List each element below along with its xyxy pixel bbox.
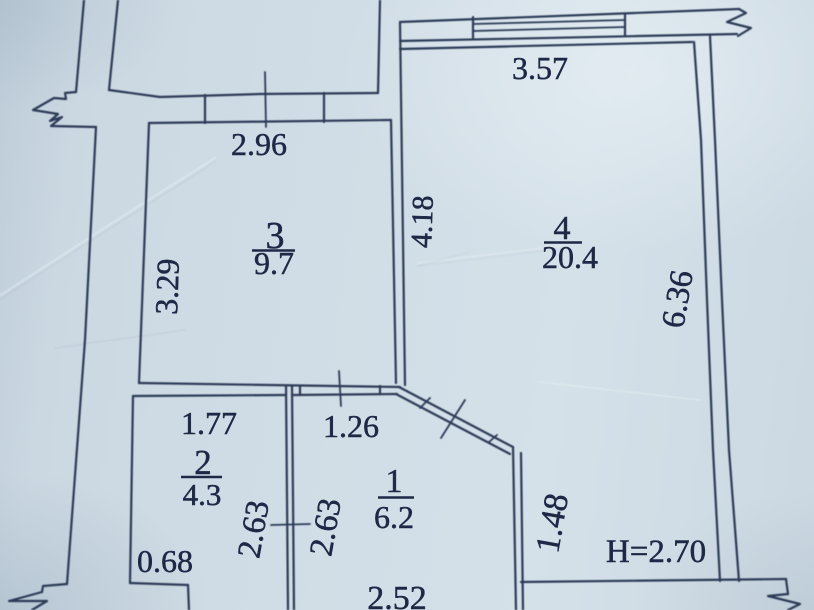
svg-text:0.68: 0.68 bbox=[137, 543, 193, 579]
svg-text:3.29: 3.29 bbox=[148, 258, 186, 315]
svg-text:4.18: 4.18 bbox=[405, 195, 440, 249]
svg-text:1.77: 1.77 bbox=[181, 405, 237, 441]
svg-text:6.36: 6.36 bbox=[655, 268, 700, 331]
svg-text:2.52: 2.52 bbox=[367, 580, 427, 610]
svg-text:2.63: 2.63 bbox=[231, 498, 276, 561]
svg-text:2.63: 2.63 bbox=[303, 496, 348, 559]
svg-text:1.26: 1.26 bbox=[323, 408, 379, 444]
svg-text:1: 1 bbox=[386, 463, 403, 500]
svg-text:6.2: 6.2 bbox=[374, 499, 414, 535]
svg-text:1.48: 1.48 bbox=[529, 491, 576, 556]
svg-text:3.57: 3.57 bbox=[512, 50, 568, 86]
svg-text:H=2.70: H=2.70 bbox=[606, 534, 706, 570]
svg-text:2.96: 2.96 bbox=[231, 126, 287, 162]
svg-text:20.4: 20.4 bbox=[542, 239, 598, 275]
svg-text:4.3: 4.3 bbox=[183, 477, 222, 512]
svg-text:9.7: 9.7 bbox=[254, 245, 294, 281]
